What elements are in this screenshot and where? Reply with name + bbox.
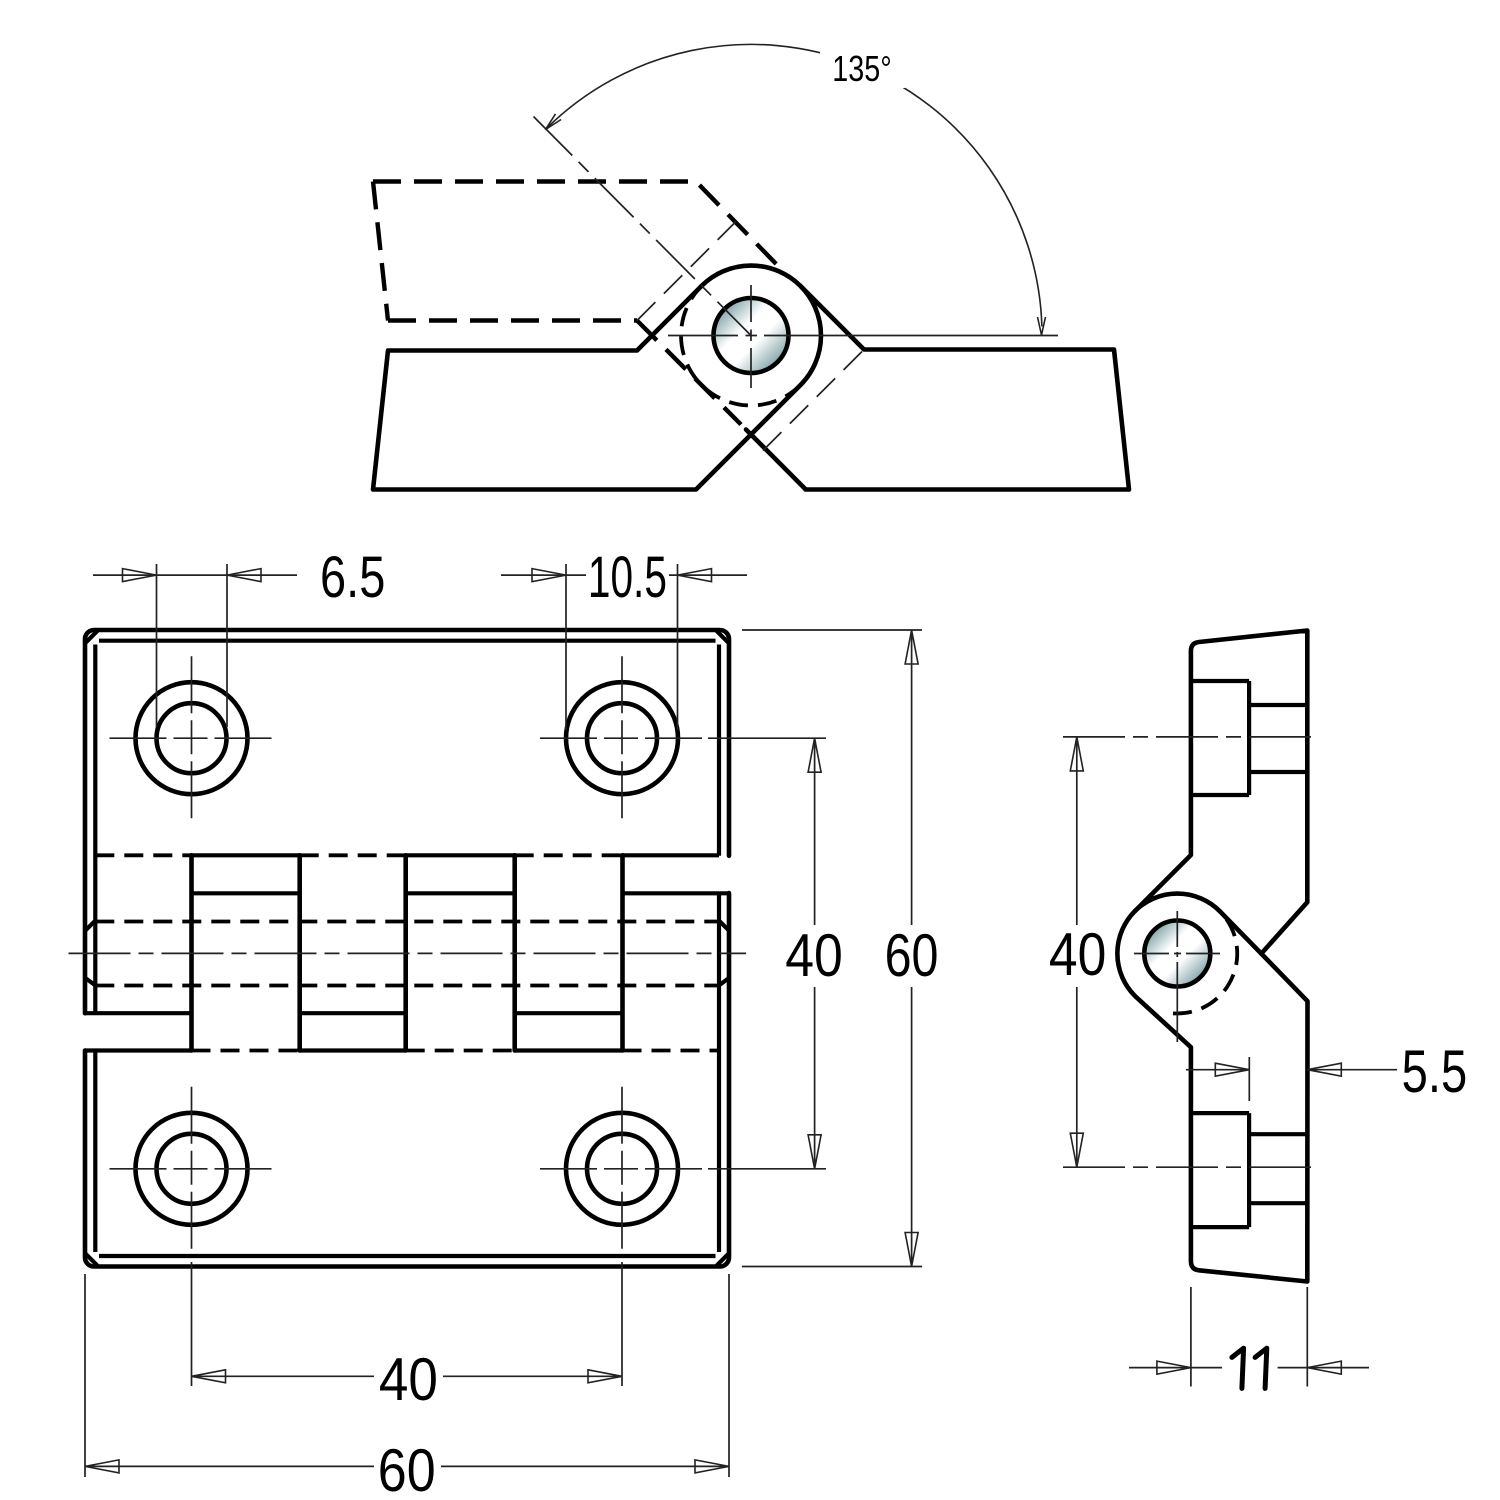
- svg-text:40: 40: [785, 921, 843, 988]
- svg-text:5.5: 5.5: [1402, 1039, 1468, 1106]
- svg-text:40: 40: [379, 1347, 438, 1414]
- svg-text:6.5: 6.5: [320, 545, 385, 610]
- svg-text:60: 60: [885, 922, 939, 989]
- svg-text:40: 40: [1049, 920, 1106, 988]
- svg-text:135°: 135°: [832, 48, 891, 89]
- svg-text:60: 60: [378, 1437, 436, 1500]
- svg-text:10.5: 10.5: [588, 545, 667, 610]
